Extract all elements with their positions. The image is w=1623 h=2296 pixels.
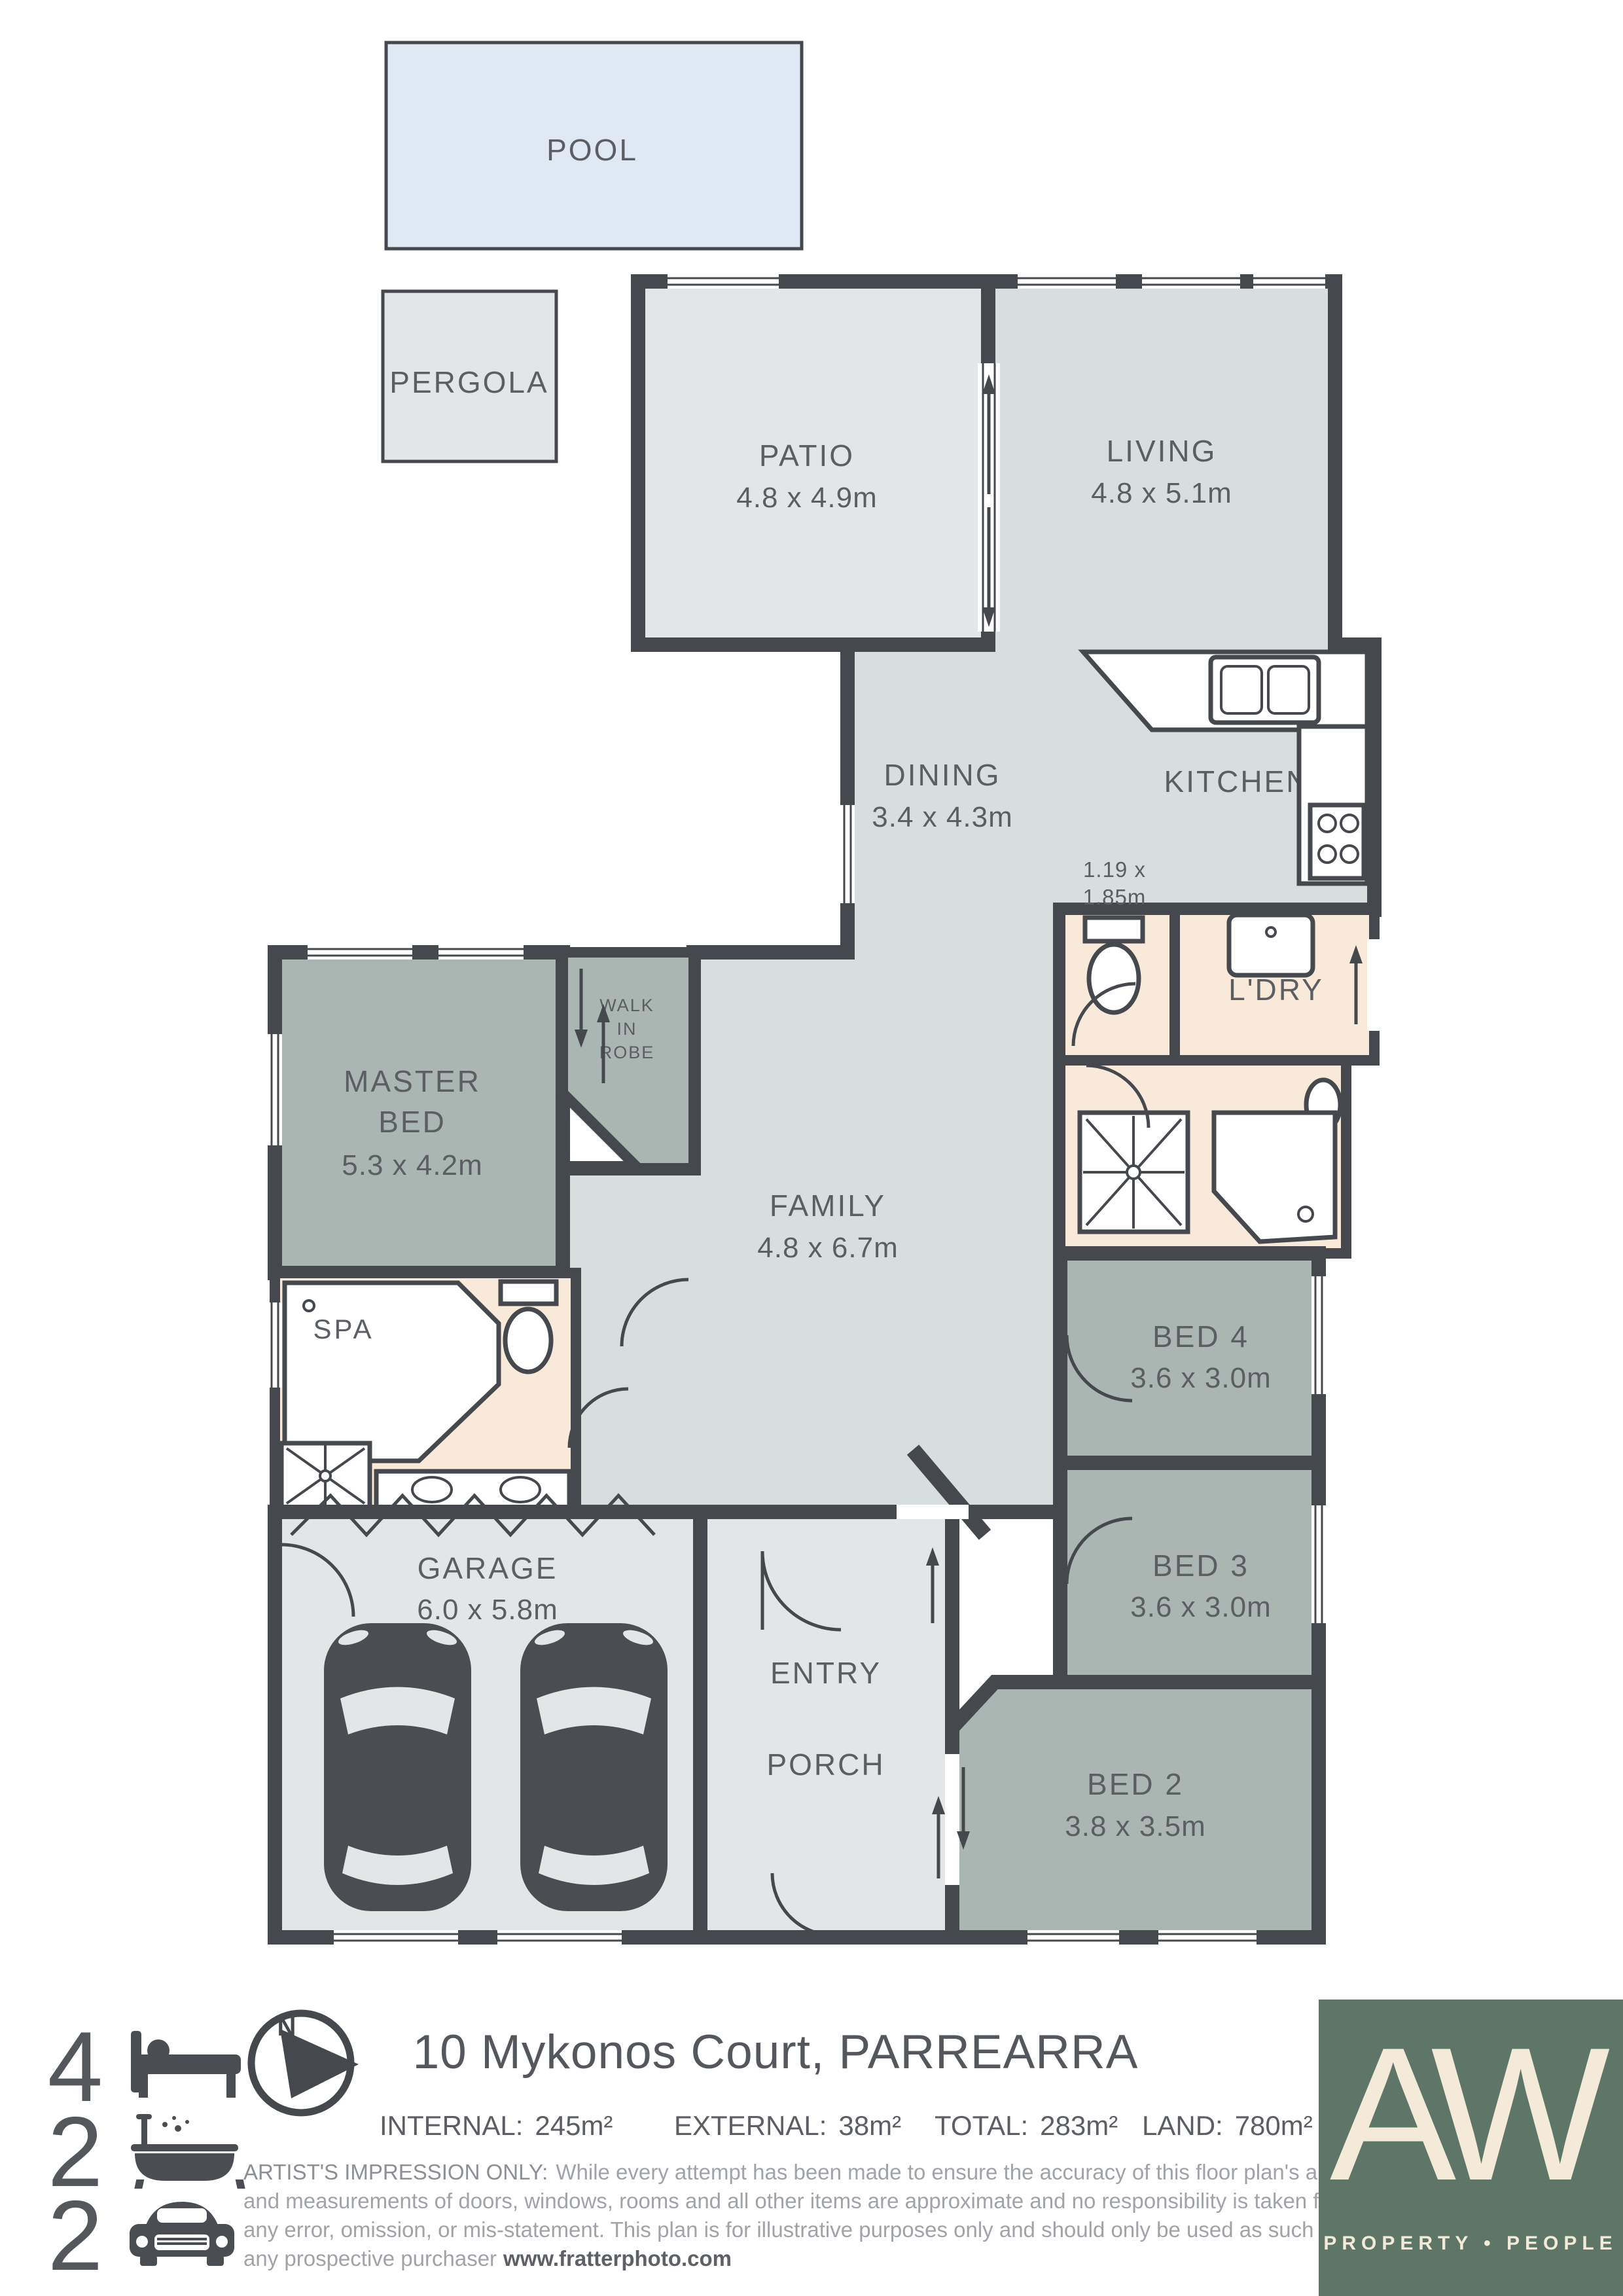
stat-external-label: EXTERNAL:	[674, 2110, 827, 2141]
dining-label: DINING	[884, 758, 1001, 792]
wc-toilet-bowl	[1089, 944, 1139, 1013]
garage-size: 6.0 x 5.8m	[417, 1594, 558, 1626]
bath-icon	[131, 2114, 245, 2189]
sliding-door	[978, 363, 1000, 632]
entry-label: ENTRY	[770, 1656, 882, 1690]
stat-external-value: 38m²	[838, 2110, 901, 2141]
ensuite-toilet-tank	[501, 1282, 556, 1304]
agency-logo: AW PROPERTY • PEOPLE	[1319, 2000, 1623, 2296]
stat-total: TOTAL:283m²	[935, 2110, 1118, 2141]
bed2-size: 3.8 x 3.5m	[1065, 1810, 1205, 1842]
pergola-label: PERGOLA	[389, 365, 548, 399]
bed4-size: 3.6 x 3.0m	[1130, 1362, 1271, 1394]
stat-total-value: 283m²	[1040, 2110, 1118, 2141]
bed2-label: BED 2	[1087, 1767, 1184, 1801]
address-title: 10 Mykonos Court, PARREARRA	[413, 2026, 1139, 2079]
disclaimer-heading: ARTIST'S IMPRESSION ONLY:	[243, 2160, 548, 2184]
compass-icon: N	[251, 2013, 359, 2113]
shower-star	[1083, 1116, 1185, 1229]
footer: 4 2 2	[48, 2000, 1623, 2296]
disclaimer-line4: any prospective purchaserwww.fratterphot…	[243, 2246, 732, 2270]
disclaimer-line2: and measurements of doors, windows, room…	[243, 2189, 1338, 2213]
laundry-tub	[1229, 915, 1313, 975]
porch-label: PORCH	[766, 1748, 885, 1782]
stat-land: LAND:780m²	[1142, 2110, 1313, 2141]
stat-land-label: LAND:	[1142, 2110, 1223, 2141]
disclaimer-line1: ARTIST'S IMPRESSION ONLY:While every att…	[243, 2160, 1359, 2184]
stat-internal: INTERNAL:245m²	[380, 2110, 613, 2141]
garage-label: GARAGE	[418, 1551, 558, 1585]
stat-internal-value: 245m²	[535, 2110, 613, 2141]
stat-land-value: 780m²	[1235, 2110, 1313, 2141]
floor-plan-page: POOL PERGOLA PATIO 4.8 x 4.9m LIVING 4.8…	[0, 0, 1623, 2296]
room-entry-porch	[700, 1512, 952, 1937]
pool-label: POOL	[546, 133, 638, 167]
master-size: 5.3 x 4.2m	[342, 1149, 482, 1181]
bed3-label: BED 3	[1152, 1549, 1249, 1583]
car-silhouette	[324, 1623, 471, 1911]
living-label: LIVING	[1107, 434, 1217, 468]
spa-label: SPA	[313, 1314, 374, 1344]
bed-icon	[131, 2031, 241, 2098]
wc-size-line2: 1.85m	[1083, 885, 1147, 909]
kitchen-label: KITCHEN	[1164, 764, 1310, 798]
living-size: 4.8 x 5.1m	[1091, 477, 1232, 509]
room-bed4	[1060, 1253, 1319, 1463]
patio-label: PATIO	[759, 439, 855, 473]
robe-label-3: ROBE	[599, 1043, 655, 1062]
car-silhouette	[520, 1623, 668, 1911]
room-bed2	[952, 1682, 1319, 1937]
patio-size: 4.8 x 4.9m	[736, 482, 877, 514]
stat-internal-label: INTERNAL:	[380, 2110, 523, 2141]
dining-size: 3.4 x 4.3m	[872, 801, 1012, 833]
disclaimer-website: www.fratterphoto.com	[503, 2246, 732, 2270]
master-label-1: MASTER	[344, 1064, 481, 1098]
wc-toilet-tank	[1085, 918, 1143, 941]
family-label: FAMILY	[770, 1189, 886, 1223]
family-size: 4.8 x 6.7m	[757, 1232, 898, 1264]
bed4-label: BED 4	[1152, 1319, 1249, 1354]
floor-plan-svg: POOL PERGOLA PATIO 4.8 x 4.9m LIVING 4.8…	[0, 0, 1623, 2296]
wc-size-line1: 1.19 x	[1083, 857, 1146, 882]
compass-north-letter: N	[277, 2013, 296, 2041]
disclaimer-line3: any error, omission, or mis-statement. T…	[243, 2217, 1343, 2242]
car-count: 2	[48, 2180, 103, 2291]
car-icon	[130, 2202, 234, 2266]
bed3-size: 3.6 x 3.0m	[1130, 1591, 1271, 1623]
master-label-2: BED	[378, 1105, 446, 1139]
robe-label-1: WALK	[599, 996, 654, 1015]
ensuite-toilet-bowl	[505, 1309, 551, 1372]
stat-total-label: TOTAL:	[935, 2110, 1028, 2141]
laundry-label: L'DRY	[1228, 973, 1324, 1007]
stat-external: EXTERNAL:38m²	[674, 2110, 901, 2141]
logo-tagline: PROPERTY • PEOPLE	[1323, 2233, 1617, 2254]
logo-monogram: AW	[1330, 2008, 1612, 2220]
disclaimer-line1-rest: While every attempt has been made to ens…	[556, 2160, 1359, 2184]
disclaimer-line4-prefix: any prospective purchaser	[243, 2246, 497, 2270]
robe-label-2: IN	[617, 1019, 637, 1039]
